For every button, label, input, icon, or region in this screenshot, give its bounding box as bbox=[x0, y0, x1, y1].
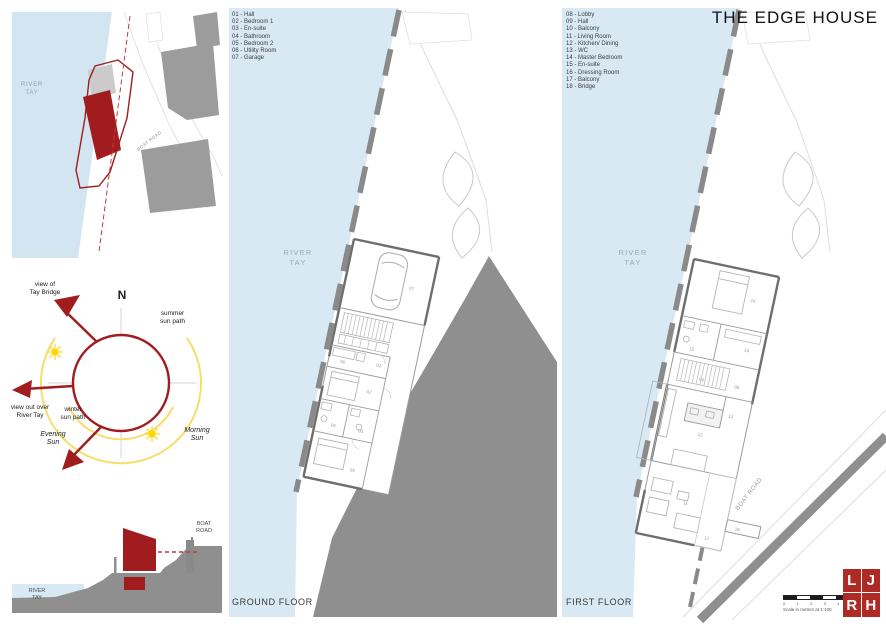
logo-letter: L bbox=[843, 569, 862, 593]
legend-item: 14 - Master Bedroom bbox=[566, 55, 622, 62]
morning-sun-icon bbox=[144, 426, 160, 442]
view-arrow-tay-bridge bbox=[54, 295, 97, 342]
site-plan-drawing bbox=[12, 12, 222, 258]
label-line: ROAD bbox=[189, 528, 219, 535]
label-line: Tay Bridge bbox=[20, 289, 70, 297]
ground-floor-title: GROUND FLOOR bbox=[232, 597, 313, 607]
label-line: Sun bbox=[172, 435, 222, 443]
legend-item: 03 - En-suite bbox=[232, 26, 276, 33]
legend-item: 07 - Garage bbox=[232, 55, 276, 62]
view-tay-bridge-label: view ofTay Bridge bbox=[20, 281, 70, 296]
scale-number: 3 bbox=[824, 601, 826, 606]
neighbour-building bbox=[161, 43, 219, 120]
legend-item: 06 - Utility Room bbox=[232, 48, 276, 55]
first-floor-legend: 08 - Lobby09 - Hall10 - Balcony11 - Livi… bbox=[566, 12, 622, 91]
tree bbox=[452, 208, 479, 258]
legend-item: 16 - Dressing Room bbox=[566, 70, 622, 77]
tree bbox=[783, 152, 813, 206]
scale-number: 4 bbox=[837, 601, 839, 606]
label-line: RIVER bbox=[608, 248, 658, 258]
north-label: N bbox=[112, 288, 132, 302]
neighbour-building bbox=[193, 12, 220, 49]
legend-item: 08 - Lobby bbox=[566, 12, 622, 19]
site-river-label: RIVERTAY bbox=[14, 82, 50, 97]
ground-floor-legend: 01 - Hall02 - Bedroom 103 - En-suite04 -… bbox=[232, 12, 276, 62]
view-river-label: view out overRiver Tay bbox=[4, 404, 56, 419]
section-house-red bbox=[123, 528, 156, 571]
label-line: Morning bbox=[172, 427, 222, 435]
drawing-sheet: 07 01 06 02 03 04 05 bbox=[0, 0, 886, 626]
scale-number: 2 bbox=[810, 601, 812, 606]
legend-item: 02 - Bedroom 1 bbox=[232, 19, 276, 26]
scale-number: 1 bbox=[797, 601, 799, 606]
page-title: THE EDGE HOUSE bbox=[690, 8, 878, 28]
legend-item: 11 - Living Room bbox=[566, 34, 622, 41]
legend-item: 12 - Kitchen/ Dining bbox=[566, 41, 622, 48]
evening-sun-label: EveningSun bbox=[32, 431, 74, 446]
first-floor-title: FIRST FLOOR bbox=[566, 597, 632, 607]
label-line: River Tay bbox=[4, 412, 56, 420]
section-river-label: RIVERTAY bbox=[20, 588, 54, 601]
label-line: Evening bbox=[32, 431, 74, 439]
label-line: RIVER bbox=[14, 82, 50, 90]
label-line: winter bbox=[53, 406, 93, 414]
legend-item: 17 - Balcony bbox=[566, 77, 622, 84]
label-line: RIVER bbox=[273, 248, 323, 258]
label-line: TAY bbox=[608, 258, 658, 268]
label-line: view out over bbox=[4, 404, 56, 412]
label-line: TAY bbox=[14, 90, 50, 98]
legend-item: 18 - Bridge bbox=[566, 84, 622, 91]
logo-letter: J bbox=[862, 569, 881, 593]
legend-item: 01 - Hall bbox=[232, 12, 276, 19]
legend-item: 05 - Bedroom 2 bbox=[232, 41, 276, 48]
label-line: TAY bbox=[273, 258, 323, 268]
legend-item: 15 - En-suite bbox=[566, 62, 622, 69]
ff-river-label: RIVERTAY bbox=[608, 248, 658, 267]
first-floor-drawing: 14 15 16 08 09 10 13 12 11 17 18 bbox=[562, 8, 886, 620]
tree bbox=[443, 152, 473, 206]
winter-sun-path-label: wintersun path bbox=[53, 406, 93, 421]
neighbour-building bbox=[141, 139, 216, 213]
label-line: sun path bbox=[53, 414, 93, 422]
label-line: view of bbox=[20, 281, 70, 289]
ljrh-logo: L J R H bbox=[843, 569, 880, 617]
scale-number: 0 bbox=[783, 601, 785, 606]
section-garage-red bbox=[124, 577, 145, 590]
summer-sun-path-label: summersun path bbox=[145, 310, 200, 325]
legend-item: 13 - WC bbox=[566, 48, 622, 55]
label-line: Sun bbox=[32, 439, 74, 447]
section-road-label: BOATROAD bbox=[189, 521, 219, 534]
morning-sun-label: MorningSun bbox=[172, 427, 222, 442]
gf-river-label: RIVERTAY bbox=[273, 248, 323, 267]
drawing-canvas: 07 01 06 02 03 04 05 bbox=[0, 0, 886, 626]
bridge bbox=[725, 520, 761, 539]
legend-item: 09 - Hall bbox=[566, 19, 622, 26]
label-line: sun path bbox=[145, 318, 200, 326]
label-line: TAY bbox=[20, 595, 54, 602]
tree bbox=[792, 208, 819, 258]
legend-item: 04 - Bathroom bbox=[232, 34, 276, 41]
logo-letter: R bbox=[843, 593, 862, 617]
logo-letter: H bbox=[862, 593, 881, 617]
ground-floor-drawing: 07 01 06 02 03 04 05 bbox=[229, 8, 557, 617]
label-line: summer bbox=[145, 310, 200, 318]
legend-item: 10 - Balcony bbox=[566, 26, 622, 33]
